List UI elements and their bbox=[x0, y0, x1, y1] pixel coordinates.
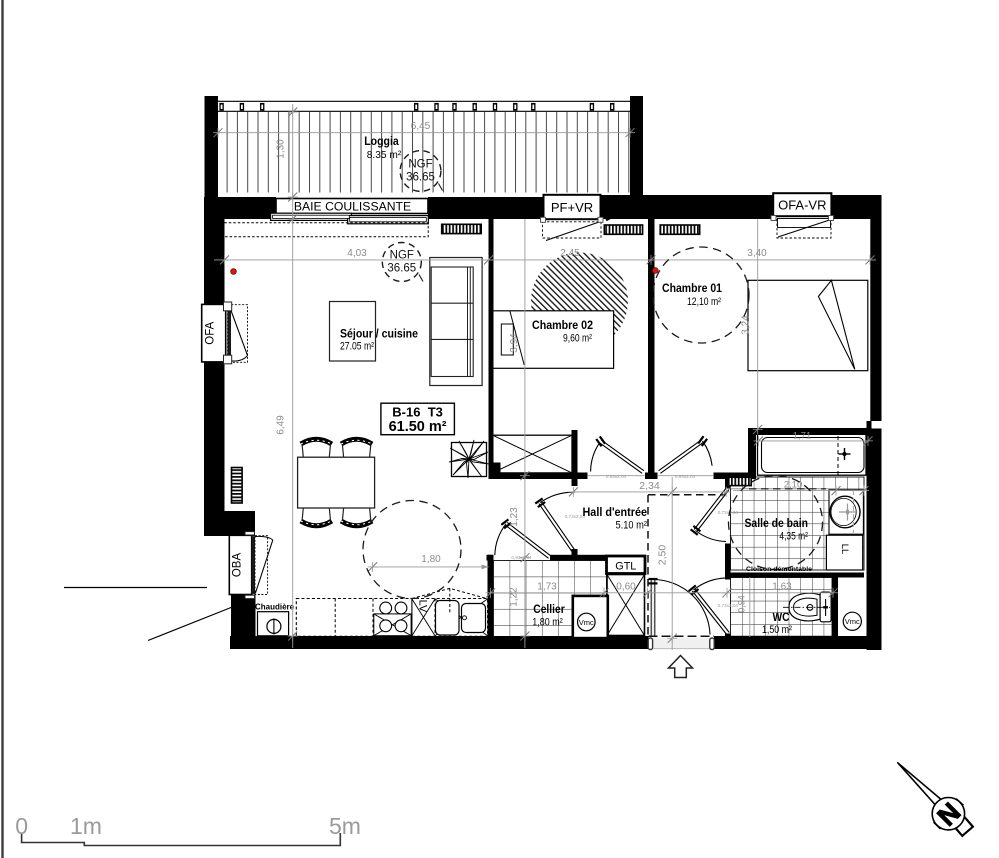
svg-text:3,24: 3,24 bbox=[741, 315, 752, 335]
svg-text:Cellier: Cellier bbox=[533, 602, 565, 616]
svg-text:GTL: GTL bbox=[615, 560, 636, 572]
svg-text:5.10 m²: 5.10 m² bbox=[616, 520, 648, 532]
svg-text:0,93x2,04: 0,93x2,04 bbox=[511, 555, 532, 560]
svg-text:1,73: 1,73 bbox=[537, 582, 557, 593]
svg-text:1,23: 1,23 bbox=[509, 507, 520, 527]
svg-text:2,45: 2,45 bbox=[560, 248, 580, 259]
svg-text:1,80 m²: 1,80 m² bbox=[532, 617, 563, 629]
svg-text:61.50 m²: 61.50 m² bbox=[389, 419, 447, 435]
svg-text:B-16 T3: B-16 T3 bbox=[392, 405, 443, 420]
svg-text:2,34: 2,34 bbox=[639, 480, 660, 492]
svg-text:1,71: 1,71 bbox=[793, 430, 812, 441]
svg-text:NGF: NGF bbox=[408, 159, 432, 171]
svg-text:Loggia: Loggia bbox=[364, 136, 399, 148]
svg-text:PF+VR: PF+VR bbox=[551, 200, 593, 215]
svg-text:3,40: 3,40 bbox=[747, 248, 767, 259]
svg-text:2,10: 2,10 bbox=[784, 480, 803, 491]
svg-text:1m: 1m bbox=[70, 813, 102, 839]
svg-text:OFA: OFA bbox=[205, 321, 217, 344]
svg-text:9,60 m²: 9,60 m² bbox=[563, 333, 592, 345]
svg-text:27.05 m²: 27.05 m² bbox=[340, 341, 374, 353]
svg-text:0,93x2,04: 0,93x2,04 bbox=[675, 474, 696, 479]
svg-text:Cloison démontable: Cloison démontable bbox=[746, 566, 812, 573]
svg-text:LV: LV bbox=[417, 600, 429, 613]
svg-text:WC: WC bbox=[773, 610, 790, 624]
svg-text:5m: 5m bbox=[329, 813, 361, 839]
svg-text:2,50: 2,50 bbox=[657, 545, 669, 566]
svg-text:1,30: 1,30 bbox=[276, 139, 287, 159]
svg-text:OFA-VR: OFA-VR bbox=[778, 198, 826, 213]
svg-text:4,35 m²: 4,35 m² bbox=[779, 531, 808, 543]
svg-text:0,73x2,04: 0,73x2,04 bbox=[718, 603, 739, 608]
svg-text:6,45: 6,45 bbox=[411, 121, 431, 132]
svg-text:Vmc: Vmc bbox=[845, 617, 860, 626]
svg-text:Chambre 02: Chambre 02 bbox=[532, 318, 593, 332]
svg-text:0,60: 0,60 bbox=[616, 582, 636, 593]
svg-text:LL: LL bbox=[839, 544, 850, 555]
svg-text:1,22: 1,22 bbox=[509, 587, 520, 607]
svg-text:36.65: 36.65 bbox=[387, 263, 416, 275]
svg-text:Vmc: Vmc bbox=[579, 618, 594, 627]
svg-text:8.35 m²: 8.35 m² bbox=[367, 149, 402, 161]
svg-text:Chambre 01: Chambre 01 bbox=[662, 281, 722, 295]
svg-text:Séjour / cuisine: Séjour / cuisine bbox=[340, 327, 418, 341]
svg-text:36.65: 36.65 bbox=[406, 172, 435, 184]
svg-text:1,80: 1,80 bbox=[421, 554, 441, 565]
svg-text:0,73x2,04: 0,73x2,04 bbox=[718, 510, 739, 515]
svg-text:12,10 m²: 12,10 m² bbox=[687, 296, 721, 308]
svg-text:1,50 m²: 1,50 m² bbox=[762, 624, 792, 636]
svg-text:4,03: 4,03 bbox=[347, 248, 367, 259]
svg-text:OBA: OBA bbox=[232, 553, 244, 578]
svg-text:Salle de bain: Salle de bain bbox=[745, 516, 809, 530]
svg-text:0: 0 bbox=[15, 813, 28, 839]
svg-text:0,93x2,04: 0,93x2,04 bbox=[606, 474, 627, 479]
svg-text:1,63: 1,63 bbox=[772, 582, 792, 593]
svg-text:Chaudière: Chaudière bbox=[255, 603, 295, 612]
svg-text:Hall d'entrée: Hall d'entrée bbox=[583, 505, 648, 519]
svg-text:NGF: NGF bbox=[390, 250, 414, 262]
svg-text:6,49: 6,49 bbox=[276, 415, 287, 435]
svg-text:3,94: 3,94 bbox=[509, 333, 520, 353]
svg-text:BAIE COULISSANTE: BAIE COULISSANTE bbox=[294, 200, 411, 214]
